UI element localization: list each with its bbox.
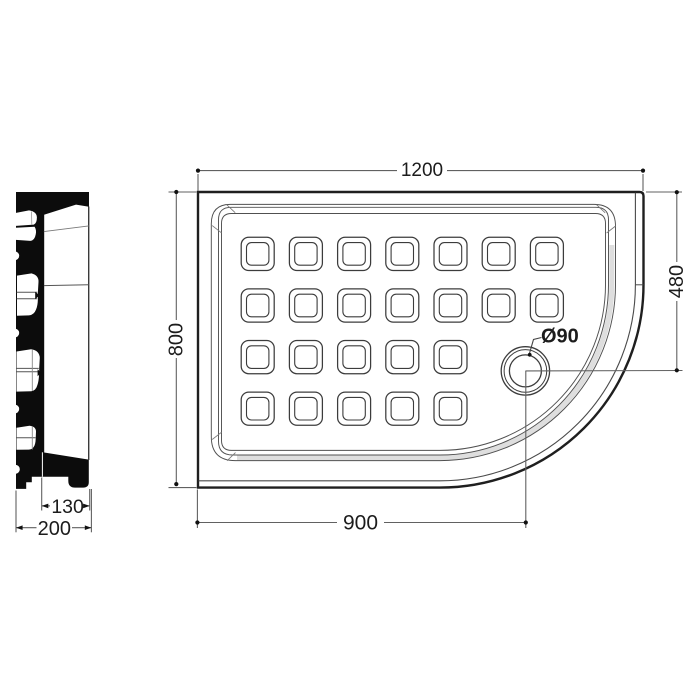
svg-text:800: 800: [166, 323, 188, 356]
svg-text:900: 900: [343, 512, 378, 535]
svg-text:130: 130: [51, 496, 84, 518]
svg-text:480: 480: [666, 265, 688, 298]
svg-text:Ø90: Ø90: [541, 325, 579, 347]
svg-text:200: 200: [38, 518, 71, 540]
svg-text:1200: 1200: [401, 160, 443, 181]
